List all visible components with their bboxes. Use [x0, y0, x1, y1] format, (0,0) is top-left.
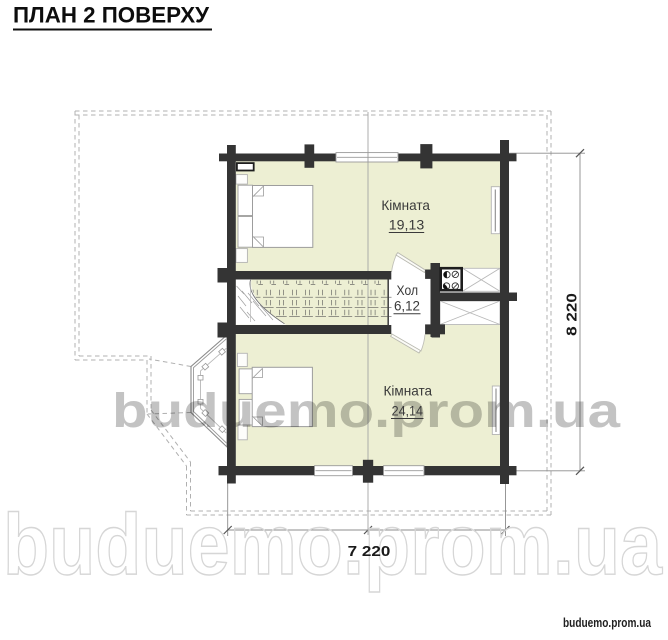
svg-text:Кімната: Кімната [384, 384, 433, 399]
svg-text:Кімната: Кімната [381, 198, 430, 213]
svg-text:buduemo.prom.ua: buduemo.prom.ua [3, 497, 663, 593]
svg-text:buduemo.prom.ua: buduemo.prom.ua [563, 615, 652, 630]
svg-text:19,13: 19,13 [389, 218, 424, 234]
svg-text:ПЛАН 2 ПОВЕРХУ: ПЛАН 2 ПОВЕРХУ [13, 3, 210, 28]
svg-text:buduemo.prom.ua: buduemo.prom.ua [112, 385, 620, 438]
svg-text:7 220: 7 220 [348, 544, 391, 560]
svg-text:Хол: Хол [397, 283, 419, 298]
svg-text:8 220: 8 220 [565, 293, 581, 336]
svg-text:24,14: 24,14 [392, 404, 423, 420]
svg-text:6,12: 6,12 [394, 299, 420, 315]
